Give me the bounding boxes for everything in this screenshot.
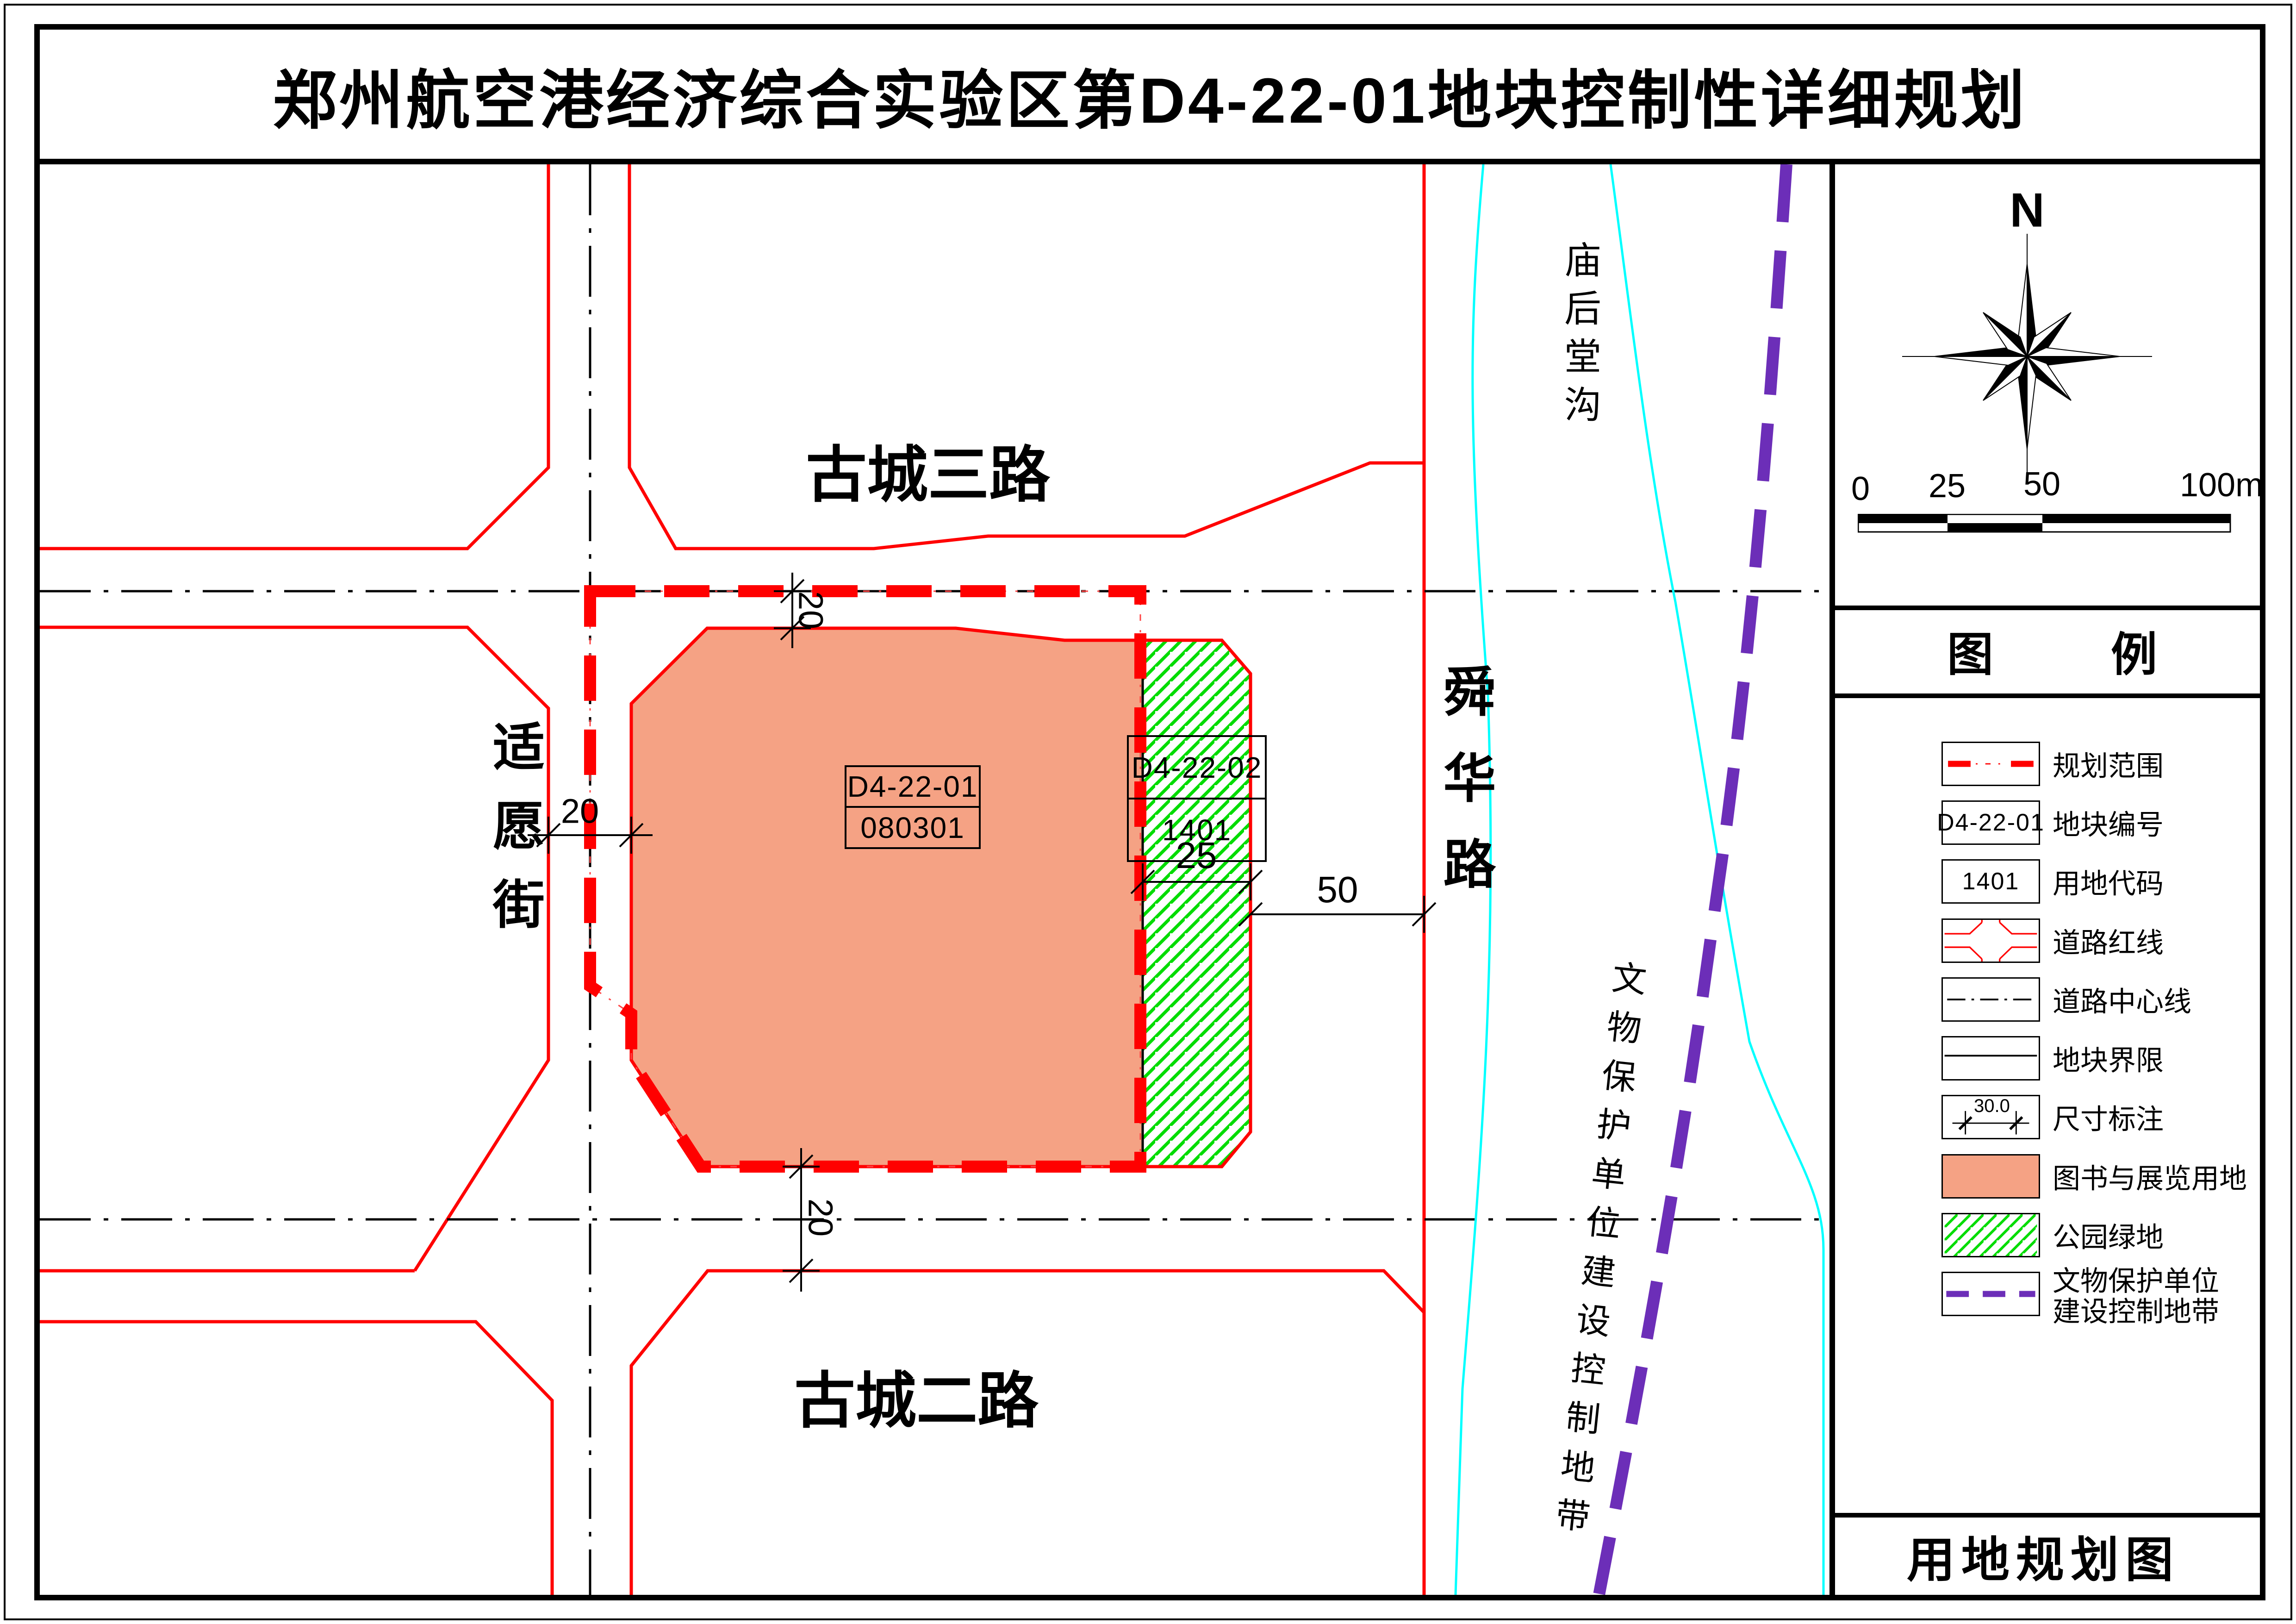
river-label: 庙后堂沟 [1553,241,1606,433]
legend-label: 地块编号 [2053,803,2164,843]
scale-label-0: 0 [1851,470,1870,508]
title-divider [40,159,2260,164]
parcel-park-green-area [1143,640,1251,1167]
park-green-icon [1941,1213,2040,1257]
legend-item-park-green: 公园绿地 [1941,1213,2265,1257]
legend-label: 用地代码 [2053,862,2164,902]
legend-label: 公园绿地 [2053,1215,2164,1255]
parcel-library-area [631,628,1143,1167]
parcel-main-code: D4-22-01 [847,769,978,804]
legend-title-left: 图 [1947,617,1993,684]
parcel-code-icon: D4-22-01 [1941,800,2040,845]
parcel-code-sample: D4-22-01 [1937,809,2045,837]
dim-top-20: 20 [791,591,831,629]
legend-item-use-code: 1401 用地代码 [1941,859,2265,904]
legend-item-parcel-limit: 地块界限 [1941,1036,2265,1081]
plan-sheet: { "title": "郑州航空港经济综合实验区第D4-22-01地块控制性详细… [0,0,2296,1624]
scale-label-100m: 100m [2180,466,2263,504]
dim-green-25: 25 [1176,834,1217,877]
heritage-boundary-line [1599,164,1786,1595]
sidebar-divider-3 [1835,1513,2260,1518]
road-label-left: 适愿街 [477,720,552,956]
legend-label: 文物保护单位 建设控制地带 [2053,1266,2219,1327]
compass-rose-icon [1898,227,2157,486]
parcel-limit-icon [1941,1036,2040,1081]
road-centerline-icon [1941,977,2040,1022]
scale-bar [1858,514,2233,533]
use-code-sample: 1401 [1962,868,2020,895]
legend-item-road-centerline: 道路中心线 [1941,977,2265,1022]
legend-label: 道路中心线 [2053,980,2191,1020]
parcel-green-code: D4-22-02 [1132,750,1263,785]
legend-item-library-land: 图书与展览用地 [1941,1154,2265,1199]
heritage-zone-icon [1941,1272,2040,1316]
legend-item-heritage-zone: 文物保护单位 建设控制地带 [1941,1272,2265,1316]
legend-label-line2: 建设控制地带 [2053,1297,2219,1327]
sidebar-divider-1 [1835,606,2260,610]
plan-boundary-icon [1941,742,2040,786]
legend-item-parcel-code: D4-22-01 地块编号 [1941,800,2265,845]
scale-label-50: 50 [2023,465,2060,503]
dim-left-20: 20 [561,792,599,831]
sheet-name: 用地规划图 [1907,1521,2180,1591]
legend-label: 规划范围 [2053,744,2164,784]
use-code-icon: 1401 [1941,859,2040,904]
dim-bottom-20: 20 [801,1199,840,1237]
road-redline-icon [1941,918,2040,963]
road-label-top: 古城三路 [806,426,1050,514]
sidebar-divider-2 [1835,693,2260,698]
legend-label: 尺寸标注 [2053,1097,2164,1137]
page-title: 郑州航空港经济综合实验区第D4-22-01地块控制性详细规划 [273,49,2027,141]
legend-item-dimension: 30.0 尺寸标注 [1941,1095,2265,1139]
legend-title-right: 例 [2111,617,2157,684]
library-land-icon [1941,1154,2040,1199]
sidebar-border [1829,164,1835,1595]
road-label-bottom: 古城二路 [794,1352,1039,1440]
legend-label: 道路红线 [2053,921,2164,961]
legend-item-road-redline: 道路红线 [1941,918,2265,963]
legend-label: 图书与展览用地 [2053,1156,2247,1197]
legend-label-line1: 文物保护单位 [2053,1266,2219,1297]
dim-offset-50: 50 [1317,868,1358,911]
road-label-right: 舜华路 [1426,664,1503,923]
parcel-main-usecode: 080301 [860,811,965,845]
dimension-sample: 30.0 [1974,1096,2010,1117]
scale-label-25: 25 [1929,467,1966,505]
legend-label: 地块界限 [2053,1038,2164,1079]
legend-item-plan-boundary: 规划范围 [1941,742,2265,786]
